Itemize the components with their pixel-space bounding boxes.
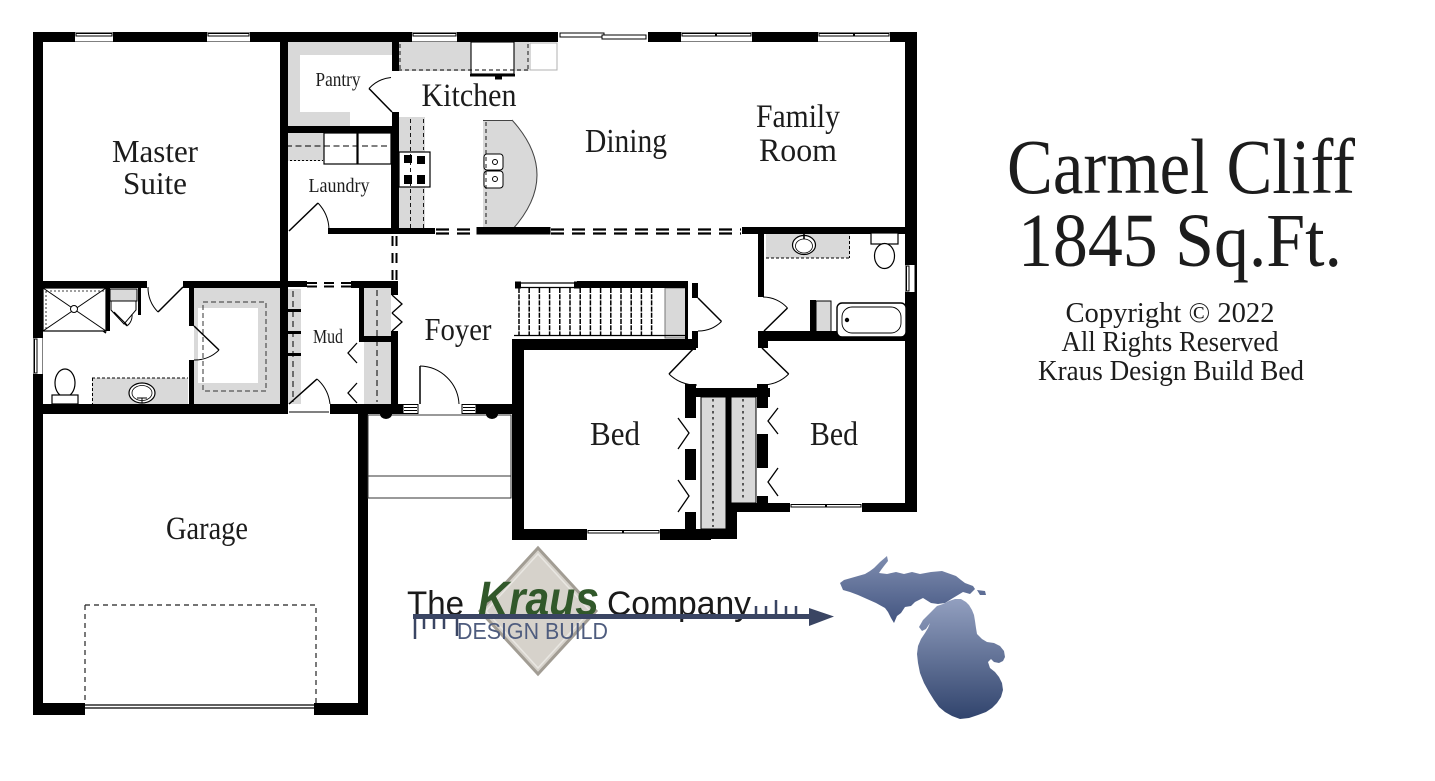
svg-text:All Rights Reserved: All Rights Reserved xyxy=(1062,326,1279,358)
svg-text:Suite: Suite xyxy=(123,165,187,201)
svg-text:Garage: Garage xyxy=(166,511,248,547)
svg-text:Carmel Cliff: Carmel Cliff xyxy=(1007,123,1355,210)
svg-text:Family: Family xyxy=(756,99,840,135)
svg-text:DESIGN BUILD: DESIGN BUILD xyxy=(457,618,608,644)
svg-text:Master: Master xyxy=(112,133,198,169)
svg-text:Laundry: Laundry xyxy=(309,175,370,197)
svg-text:Kitchen: Kitchen xyxy=(422,78,517,114)
svg-text:Room: Room xyxy=(759,133,837,169)
svg-text:Kraus Design Build Bed: Kraus Design Build Bed xyxy=(1038,355,1304,387)
svg-text:Mud: Mud xyxy=(313,326,343,348)
svg-text:Bed: Bed xyxy=(810,416,858,453)
svg-text:Dining: Dining xyxy=(585,123,667,160)
svg-text:Copyright © 2022: Copyright © 2022 xyxy=(1066,297,1275,329)
svg-text:Bed: Bed xyxy=(590,416,640,453)
svg-text:Foyer: Foyer xyxy=(425,311,492,347)
svg-text:Pantry: Pantry xyxy=(316,69,361,91)
svg-text:1845 Sq.Ft.: 1845 Sq.Ft. xyxy=(1018,199,1342,283)
